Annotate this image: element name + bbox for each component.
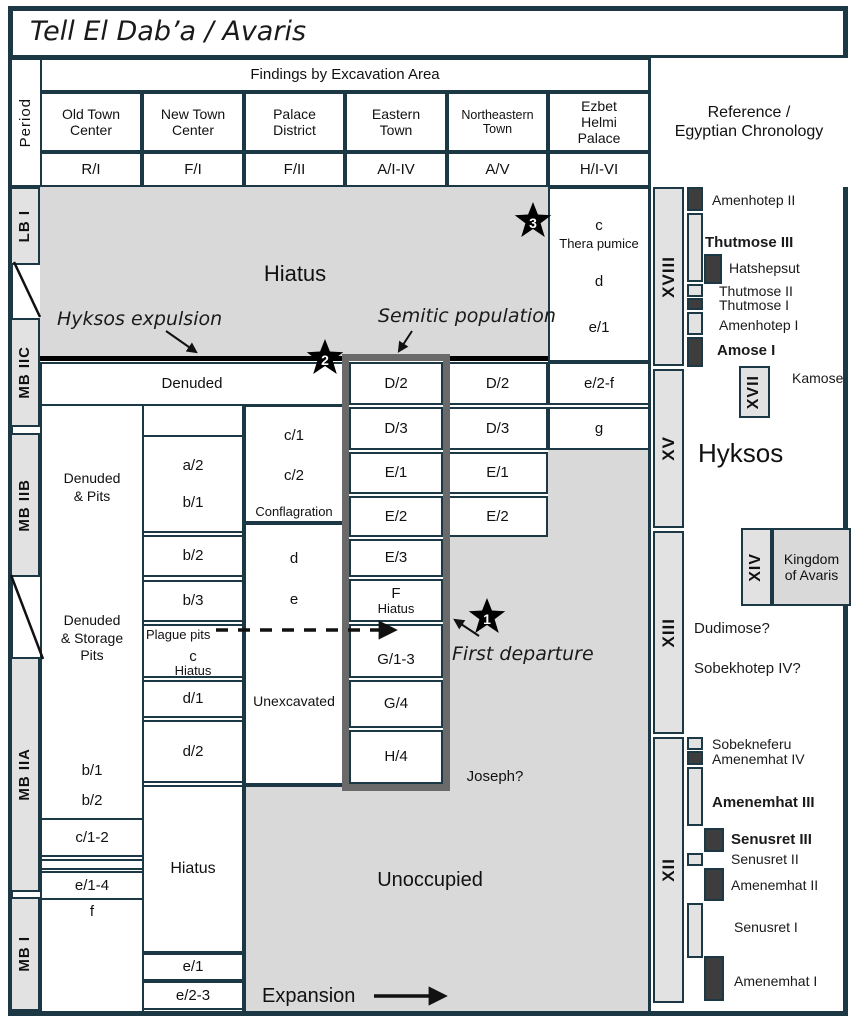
period-diagonal-mb2b-mb2a [11, 575, 43, 659]
stratigraphy-diagram: Tell El Dab’a / Avaris Period Findings b… [0, 0, 856, 1024]
first-departure-label: First departure [452, 643, 594, 665]
arrows-overlay [0, 0, 856, 1024]
star-3-number: 3 [529, 212, 537, 231]
first-departure-arrow [455, 620, 479, 636]
hyksos-expulsion-label: Hyksos expulsion [57, 308, 222, 330]
semitic-population-arrow [399, 331, 412, 351]
semitic-population-label: Semitic population [378, 305, 556, 327]
star-1-number: 1 [483, 608, 491, 627]
period-diagonal-lb1-mb2c [14, 262, 40, 317]
hyksos-expulsion-arrow [166, 331, 196, 352]
star-2-number: 2 [321, 349, 329, 368]
